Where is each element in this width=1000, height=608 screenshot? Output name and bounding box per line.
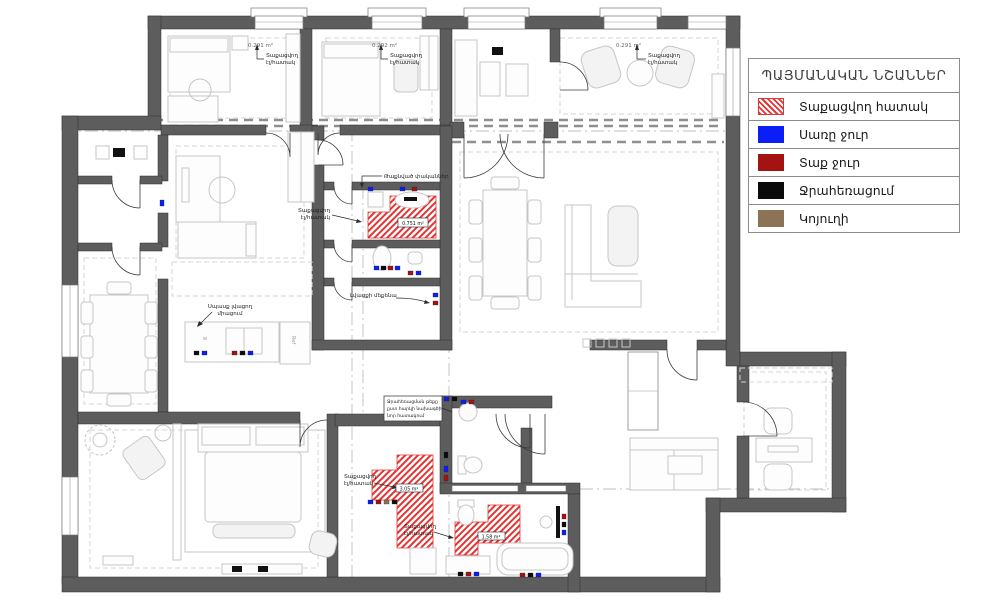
bedroom-top-left [168,34,300,122]
markers-laundry [368,500,397,504]
svg-text:նոր հատակում: նոր հատակում [386,413,424,419]
tv-nook [630,438,718,490]
fridge-label: Ref [290,336,296,344]
washing-machine-callout: Լվացքի մեքենա [350,293,430,304]
room-top-right-small [455,40,528,116]
svg-text:Տաքացվող: Տաքացվող [404,524,437,530]
heated-callout-bathroom1: Տաքացվող էլ/հատակ [298,208,362,223]
svg-text:Տաքացվող: Տաքացվող [298,208,331,214]
heated-callout-lounge-l2: էլ/հատակ [648,60,677,66]
legend-row-sewer: Կոյուղի [749,205,959,232]
wall-niches [452,486,566,492]
sink-mark: w [203,336,207,342]
legend: ՊԱՅՄԱՆԱԿԱՆ ՆՇԱՆՆԵՐ Տաքացվող հատակ Սառը ջ… [748,58,960,233]
toilet [458,505,474,525]
round-mirror [155,425,171,441]
svg-text:3.05 m²: 3.05 m² [400,487,419,493]
curtain [173,424,181,560]
legend-title: ՊԱՅՄԱՆԱԿԱՆ ՆՇԱՆՆԵՐ [749,59,959,93]
window-sills-top [251,8,661,17]
svg-text:ըստ հարկի նախագծի: ըստ հարկի նախագծի [387,406,442,412]
window-left-1 [62,285,78,357]
legend-row-drainage: Ջրահեռացում [749,177,959,205]
cold-water-swatch [758,126,784,143]
svg-text:Ջրահեռացման թեքը: Ջրահեռացման թեքը [387,399,438,405]
hall-closet [628,352,658,430]
bedroom-bottom-left [85,424,339,574]
shower-rail [556,506,560,538]
svg-text:1.58 m²: 1.58 m² [482,535,501,541]
dining-room-left-wing [81,282,157,406]
shower-head [540,516,552,528]
heated-callout-bed1-l2: էլ/հատակ [266,60,295,66]
boxed-area-laundry: 3.05 m² [396,484,423,493]
heated-callout-lounge-l1: Տաքացվող [648,53,681,59]
boxed-area-bath2: 1.58 m² [478,532,505,541]
drainage-swatch [758,182,784,199]
svg-text:էլ/հատակ: էլ/հատակ [344,481,373,487]
legend-row-cold-water: Սառը ջուր [749,121,959,149]
floor-plan-page: 0.291 m² Տաքացվող էլ/հատակ 0.292 m² Տաքա… [0,0,1000,608]
svg-text:Սպասք լվացող: Սպասք լվացող [208,304,253,310]
area-label-bedroom2: 0.292 m² [372,42,397,49]
chaise [608,206,638,266]
window-top-2 [372,16,422,29]
wc-top-bottom-zone [458,403,482,474]
heated-callout-bed1-l1: Տաքացվող [266,53,299,59]
living-dining-room [469,177,641,347]
sewer-swatch [758,210,784,227]
legend-row-heated-floor: Տաքացվող հատակ [749,93,959,121]
svg-text:էլ/հատակ: էլ/հատակ [404,531,433,537]
sink-round [459,403,477,421]
heated-callout-bath2: Տաքացվող էլ/հատակ [404,524,454,539]
heated-callout-bed2-l1: Տաքացվող [390,53,423,59]
toilet [464,457,482,473]
window-left-2 [62,477,78,535]
washing-machine-box [368,192,383,207]
svg-text:էլ/հատակ: էլ/հատակ [301,215,330,221]
window-top-1 [255,16,303,29]
tv-unit [492,47,503,55]
study-room-center [176,132,314,258]
armchair [121,434,168,482]
heated-callout-bed2-l2: էլ/հատակ [390,60,419,66]
entry-room-left-wing [96,146,147,159]
svg-text:միացում: միացում [217,311,243,317]
legend-row-hot-water: Տաք ջուր [749,149,959,177]
media-box [258,566,268,572]
hidden-valves-label: Թաքնված փականներ [384,174,449,180]
window-top-3 [468,16,525,29]
bidet [408,252,422,264]
wall-art [113,148,125,157]
vanity [446,556,490,574]
svg-text:0.751 m²: 0.751 m² [402,221,424,227]
area-label-bedroom1: 0.291 m² [248,42,273,49]
heated-floor-swatch [758,98,784,115]
note-box: Ջրահեռացման թեքը ըստ հարկի նախագծի նոր հ… [384,396,452,421]
window-top-5 [688,16,726,29]
window-top-4 [604,16,657,29]
media-box [232,566,242,572]
hot-water-swatch [758,154,784,171]
svg-text:Լվացքի մեքենա: Լվացքի մեքենա [350,293,397,299]
office-right-wing [740,368,832,490]
svg-text:Տաքացվող: Տաքացվող [344,474,377,480]
boxed-area-bathroom1: 0.751 m² [398,218,428,227]
window-right [726,48,740,116]
